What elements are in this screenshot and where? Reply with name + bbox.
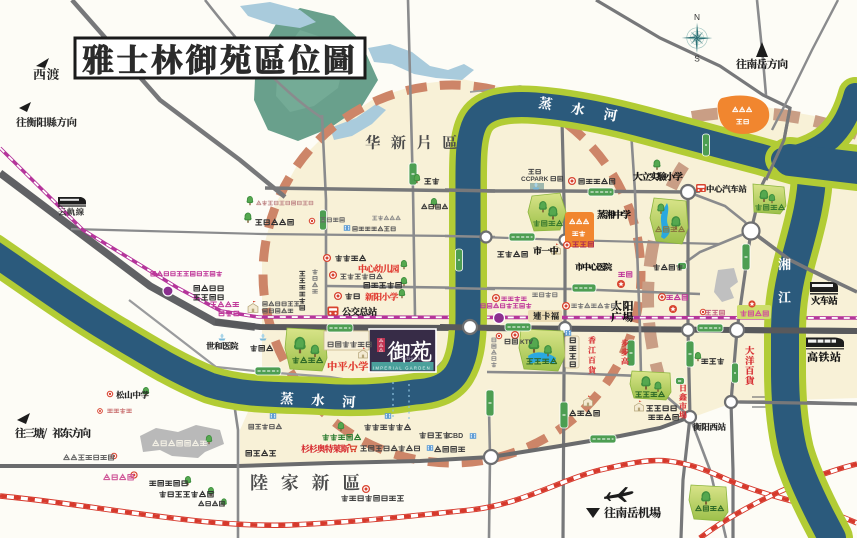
svg-text:N: N [694, 12, 700, 22]
svg-text:YASHILIN: YASHILIN [401, 357, 421, 361]
svg-text:IMPERIAL GARDEN: IMPERIAL GARDEN [373, 366, 431, 371]
svg-text:KTV: KTV [520, 339, 534, 346]
svg-text:S: S [694, 54, 700, 64]
svg-text:CBD: CBD [448, 433, 463, 440]
svg-text:CCPARK: CCPARK [521, 176, 549, 183]
